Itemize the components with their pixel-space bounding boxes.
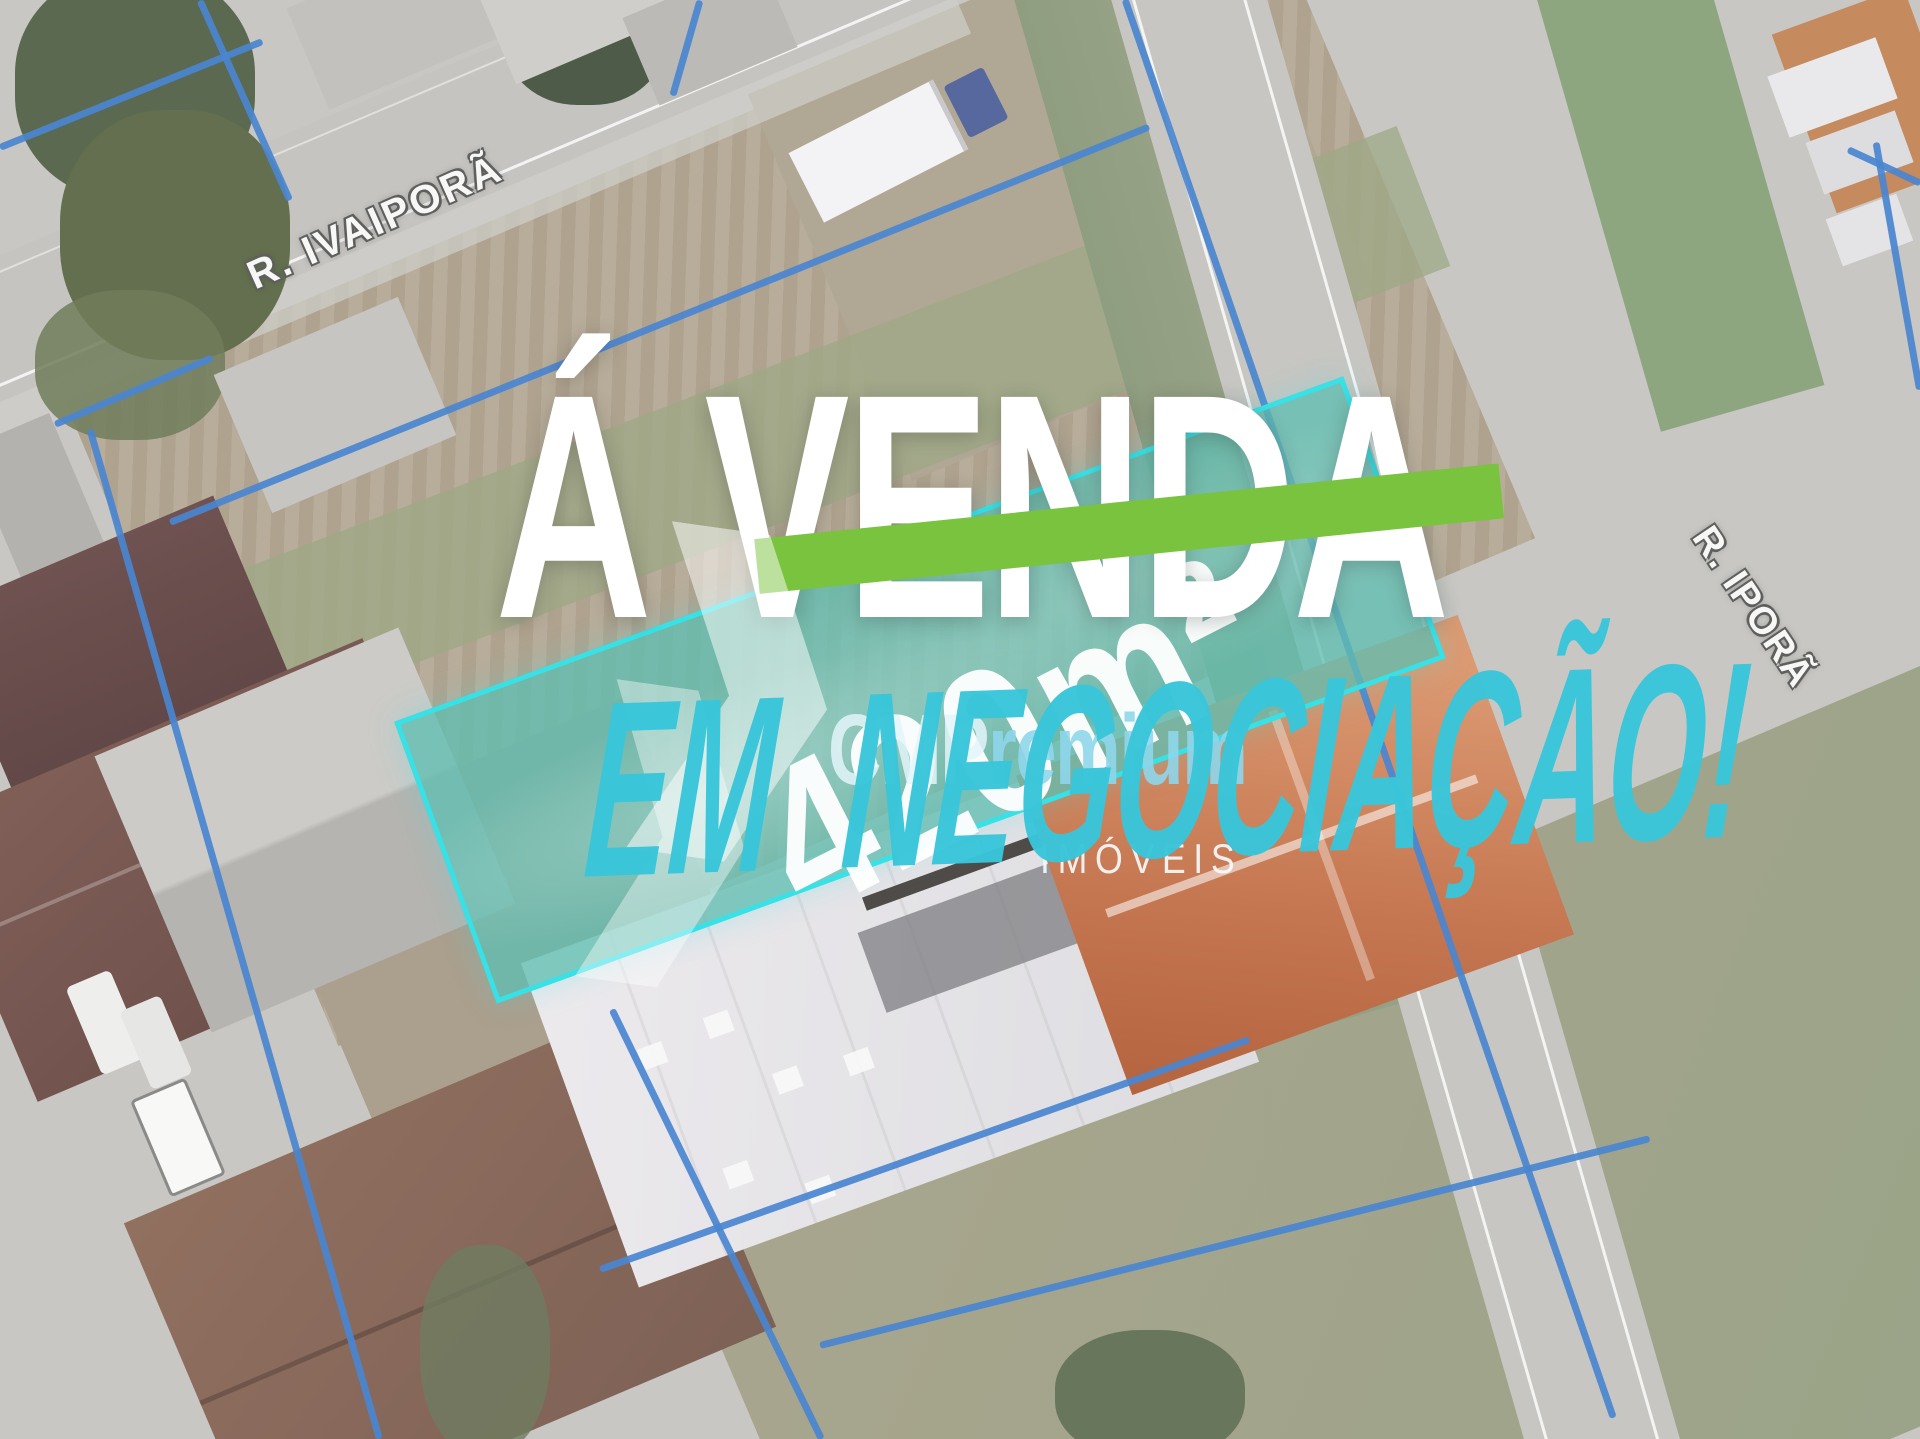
parked-van	[130, 1077, 226, 1197]
skylight	[702, 1009, 734, 1039]
real-estate-ad: R. IVAIPORÃ R. IPORÃ 420m² Á VENDA CMPre…	[0, 0, 1920, 1439]
bush	[420, 1245, 550, 1439]
skylight	[722, 1160, 754, 1190]
skylight	[772, 1065, 804, 1095]
bush	[1055, 1330, 1245, 1439]
road-ipora-grass-right	[1496, 0, 1825, 432]
negotiation-banner: EM NEGOCIAÇÃO!	[579, 625, 1756, 916]
skylight	[842, 1047, 874, 1077]
